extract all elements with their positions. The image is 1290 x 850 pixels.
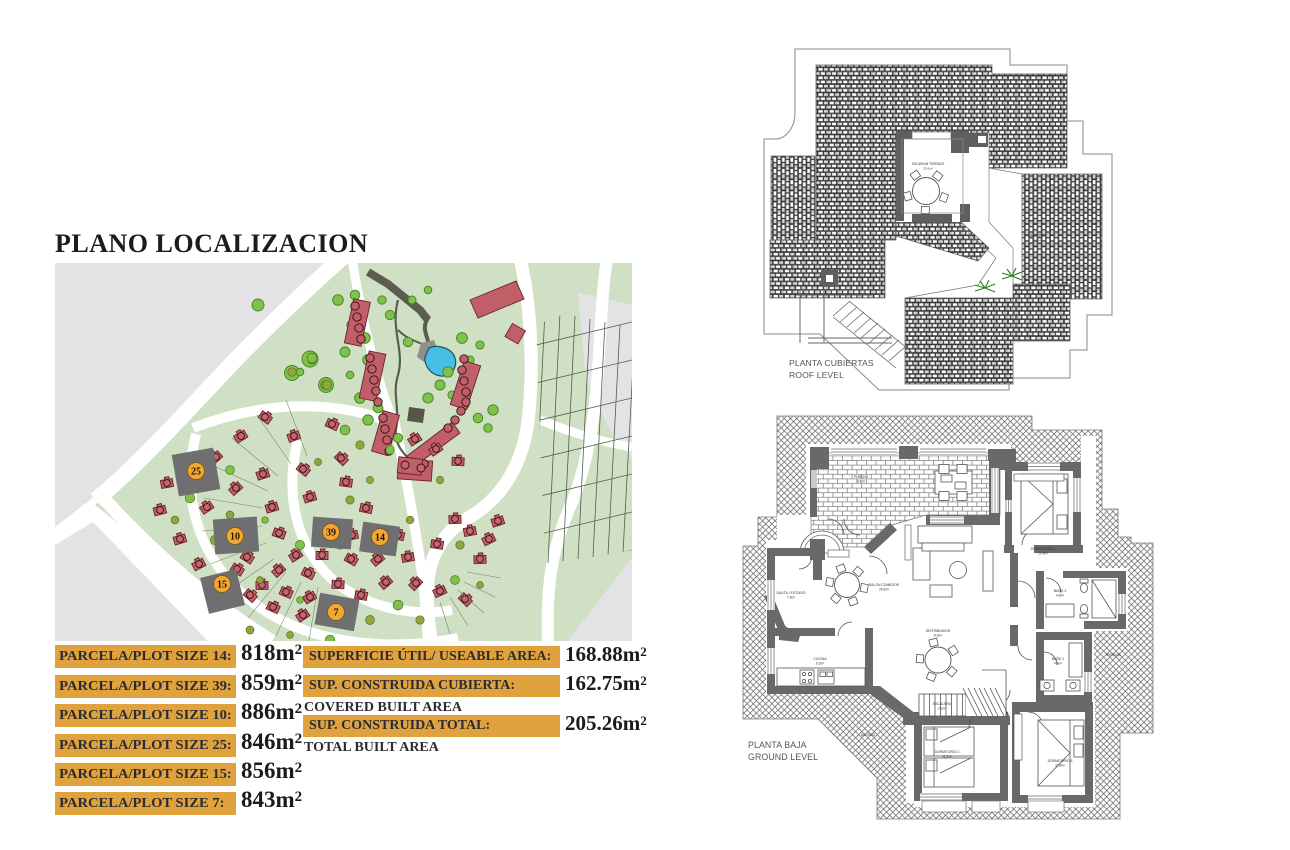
svg-text:24.6m²: 24.6m² (879, 588, 889, 592)
svg-text:3.1m²: 3.1m² (938, 707, 946, 711)
svg-text:4.4m²: 4.4m² (1054, 662, 1062, 666)
svg-text:11.2m²: 11.2m² (942, 755, 952, 759)
svg-text:12.4m²: 12.4m² (1038, 552, 1048, 556)
svg-text:14: 14 (375, 532, 385, 543)
svg-text:9.2m²: 9.2m² (816, 662, 824, 666)
svg-text:PLANTA BAJA: PLANTA BAJA (748, 740, 807, 750)
svg-text:PLANTA CUBIERTAS: PLANTA CUBIERTAS (789, 358, 874, 368)
svg-text:11.8m²: 11.8m² (1055, 764, 1065, 768)
svg-text:DORMITORIO 1: DORMITORIO 1 (1031, 547, 1056, 551)
svg-text:7: 7 (334, 607, 339, 618)
svg-text:DORMITORIO 3: DORMITORIO 3 (1048, 759, 1073, 763)
svg-text:4.6m²: 4.6m² (1056, 594, 1064, 598)
svg-text:SOLARIUM TERRACE: SOLARIUM TERRACE (912, 162, 945, 166)
svg-text:15: 15 (217, 579, 227, 590)
svg-text:ESCALERA: ESCALERA (933, 702, 952, 706)
svg-text:25: 25 (191, 466, 201, 477)
svg-text:DORMITORIO 2: DORMITORIO 2 (935, 750, 960, 754)
svg-text:10: 10 (230, 531, 240, 542)
svg-text:SALA TECN: SALA TECN (1028, 234, 1046, 238)
svg-text:9.8m²: 9.8m² (857, 480, 865, 484)
svg-text:SALON COMEDOR: SALON COMEDOR (869, 583, 900, 587)
svg-text:7.6m²: 7.6m² (787, 596, 795, 600)
svg-text:ROOF LEVEL: ROOF LEVEL (789, 370, 844, 380)
svg-text:ACCESO: ACCESO (861, 733, 876, 737)
svg-text:8.3m²: 8.3m² (1033, 239, 1041, 243)
svg-text:DISTRIBUIDOR: DISTRIBUIDOR (926, 629, 951, 633)
svg-text:8.3m²: 8.3m² (934, 634, 942, 638)
svg-text:PORCHE: PORCHE (854, 475, 869, 479)
svg-text:TERRAZA: TERRAZA (1105, 653, 1122, 657)
svg-text:SALITA / ESTUDIO: SALITA / ESTUDIO (776, 591, 806, 595)
svg-text:25.6m²: 25.6m² (923, 167, 932, 171)
svg-text:BAÑO 1: BAÑO 1 (1052, 656, 1065, 661)
svg-text:BAÑO 2: BAÑO 2 (1054, 588, 1067, 593)
svg-text:GROUND LEVEL: GROUND LEVEL (748, 752, 818, 762)
svg-text:39: 39 (326, 527, 336, 538)
svg-text:COCINA: COCINA (813, 657, 827, 661)
